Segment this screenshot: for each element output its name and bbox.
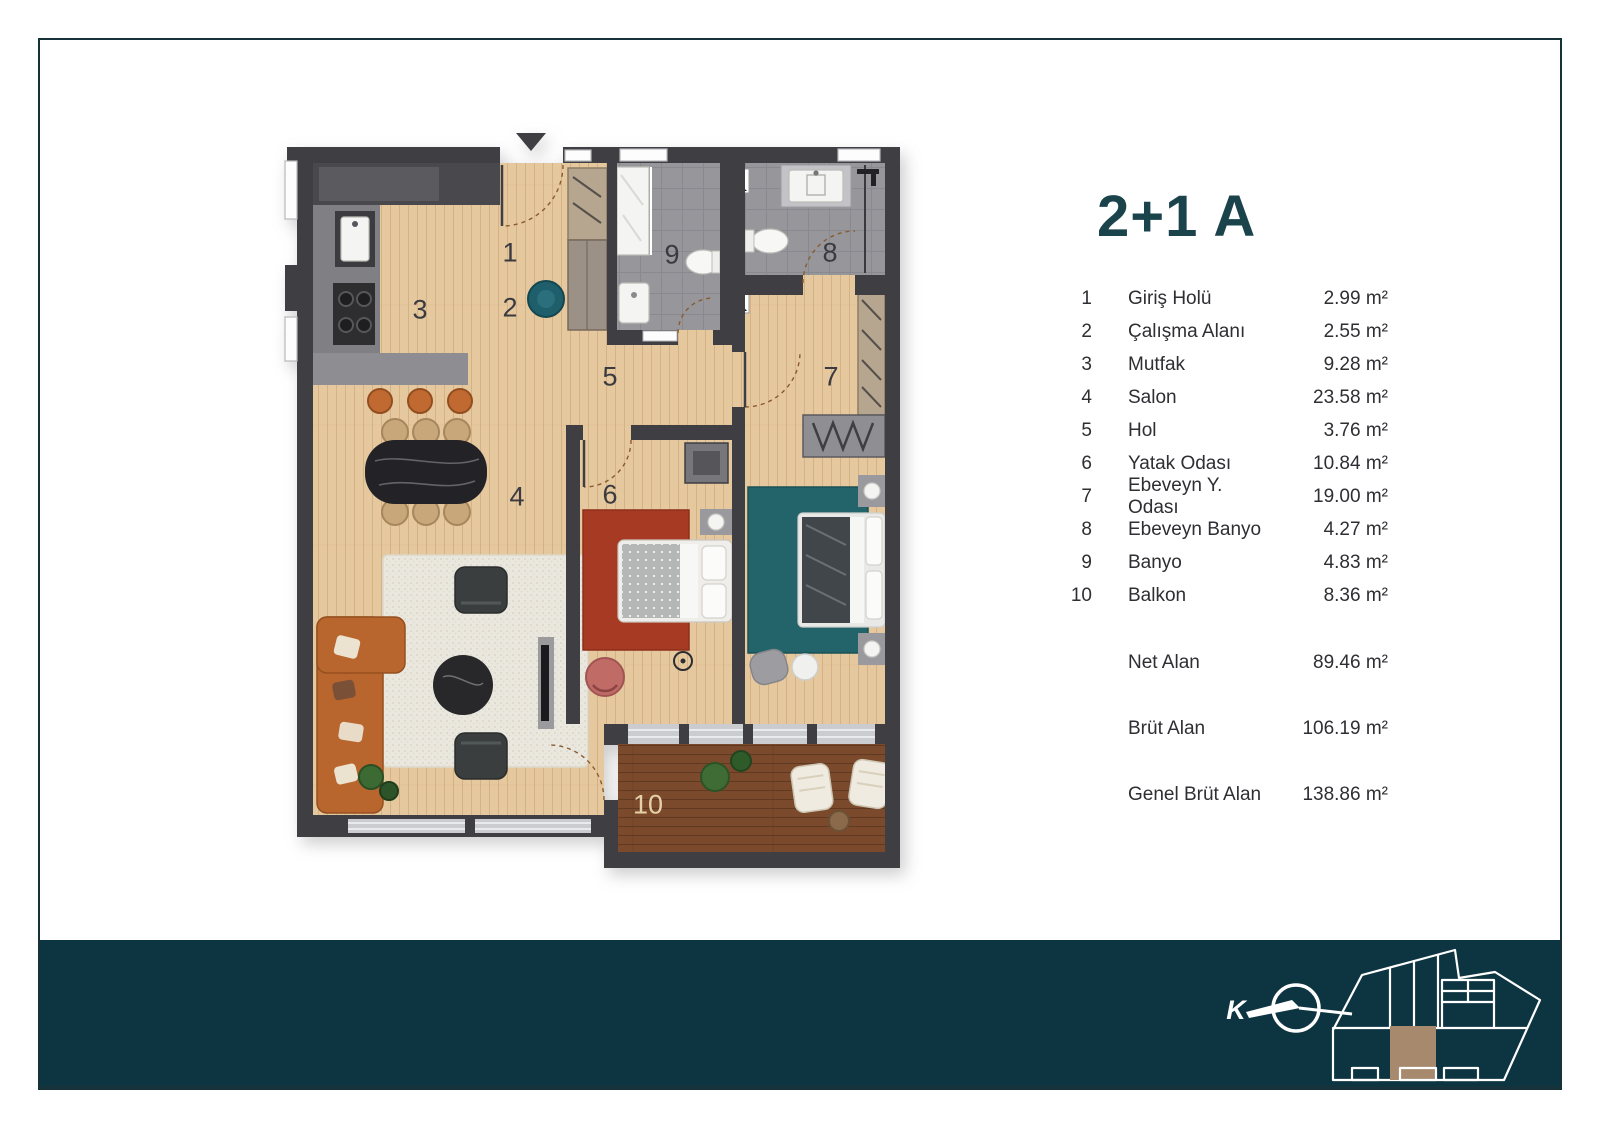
legend-room-label: Ebeveyn Y. Odası	[1128, 475, 1276, 519]
legend-row: 3Mutfak9.28 m²	[1062, 348, 1388, 381]
legend-room-area: 2.55 m²	[1276, 321, 1388, 343]
svg-text:K: K	[1226, 995, 1248, 1025]
legend-row: 4Salon23.58 m²	[1062, 381, 1388, 414]
balcony	[618, 724, 892, 852]
legend-room-number: 7	[1062, 486, 1092, 508]
legend-room-number: 1	[1062, 288, 1092, 310]
north-compass-icon: K	[1226, 985, 1352, 1031]
legend-row: 9Banyo4.83 m²	[1062, 546, 1388, 579]
legend-room-number: 4	[1062, 387, 1092, 409]
coffee-table	[433, 655, 493, 715]
total-brut: Brüt Alan106.19 m²	[1062, 718, 1388, 740]
legend-room-area: 10.84 m²	[1276, 453, 1388, 475]
legend-room-label: Salon	[1128, 387, 1276, 409]
bar-stool	[448, 389, 472, 413]
total-value: 89.46 m²	[1268, 652, 1388, 674]
legend-room-area: 19.00 m²	[1276, 486, 1388, 508]
total-label: Brüt Alan	[1128, 718, 1268, 740]
room-number-2: 2	[502, 293, 517, 324]
legend-room-area: 4.27 m²	[1276, 519, 1388, 541]
legend-room-number: 10	[1062, 585, 1092, 607]
entrance-arrow-icon	[516, 133, 546, 151]
legend-row: 7Ebeveyn Y. Odası19.00 m²	[1062, 480, 1388, 513]
legend-room-number: 3	[1062, 354, 1092, 376]
plant	[359, 765, 383, 789]
total-genel-brut: Genel Brüt Alan138.86 m²	[1062, 784, 1388, 806]
legend-room-number: 9	[1062, 552, 1092, 574]
legend-room-area: 2.99 m²	[1276, 288, 1388, 310]
tv	[541, 645, 549, 721]
room-legend: 1Giriş Holü2.99 m² 2Çalışma Alanı2.55 m²…	[1062, 282, 1388, 612]
legend-room-label: Banyo	[1128, 552, 1276, 574]
dining-area	[365, 419, 487, 525]
total-label: Genel Brüt Alan	[1128, 784, 1268, 806]
room-number-4: 4	[509, 482, 524, 513]
legend-room-label: Mutfak	[1128, 354, 1276, 376]
total-value: 138.86 m²	[1268, 784, 1388, 806]
legend-room-area: 23.58 m²	[1276, 387, 1388, 409]
floor-plan	[283, 125, 913, 870]
legend-room-label: Yatak Odası	[1128, 453, 1276, 475]
legend-room-number: 8	[1062, 519, 1092, 541]
room-number-1: 1	[502, 238, 517, 269]
lounge-chair	[790, 763, 834, 814]
legend-room-area: 4.83 m²	[1276, 552, 1388, 574]
legend-row: 1Giriş Holü2.99 m²	[1062, 282, 1388, 315]
legend-row: 5Hol3.76 m²	[1062, 414, 1388, 447]
bathroom-8	[745, 163, 885, 275]
legend-row: 8Ebeveyn Banyo4.27 m²	[1062, 513, 1388, 546]
utility-box-inner	[693, 451, 720, 475]
legend-room-area: 9.28 m²	[1276, 354, 1388, 376]
page: 1 2 3 4 5 6 7 8 9 10 2+1 A 1Giriş Holü2.…	[0, 0, 1600, 1131]
room-number-5: 5	[602, 362, 617, 393]
closet	[803, 415, 885, 457]
side-table	[792, 654, 818, 680]
legend-room-number: 2	[1062, 321, 1092, 343]
total-net: Net Alan89.46 m²	[1062, 652, 1388, 674]
total-label: Net Alan	[1128, 652, 1268, 674]
legend-room-label: Çalışma Alanı	[1128, 321, 1276, 343]
armchair	[455, 733, 507, 779]
plant	[380, 782, 398, 800]
legend-room-label: Giriş Holü	[1128, 288, 1276, 310]
room-number-6: 6	[602, 480, 617, 511]
bar-stool	[408, 389, 432, 413]
room-number-3: 3	[412, 295, 427, 326]
legend-room-number: 5	[1062, 420, 1092, 442]
footer-graphics: K	[40, 940, 1560, 1088]
legend-room-label: Hol	[1128, 420, 1276, 442]
armchair	[455, 567, 507, 613]
entry-wardrobe	[568, 168, 607, 330]
unit-highlight	[1390, 1026, 1436, 1080]
total-value: 106.19 m²	[1268, 718, 1388, 740]
unit-title: 2+1 A	[1097, 188, 1256, 246]
room-number-9: 9	[664, 240, 679, 271]
room-number-8: 8	[822, 238, 837, 269]
footer-band: K	[40, 940, 1560, 1088]
legend-room-label: Ebeveyn Banyo	[1128, 519, 1276, 541]
bar-stool	[368, 389, 392, 413]
legend-row: 10Balkon8.36 m²	[1062, 579, 1388, 612]
room-number-10: 10	[633, 790, 663, 821]
site-plan-icon	[1333, 950, 1540, 1080]
legend-room-number: 6	[1062, 453, 1092, 475]
legend-row: 2Çalışma Alanı2.55 m²	[1062, 315, 1388, 348]
legend-room-area: 8.36 m²	[1276, 585, 1388, 607]
legend-room-area: 3.76 m²	[1276, 420, 1388, 442]
legend-room-label: Balkon	[1128, 585, 1276, 607]
room-number-7: 7	[823, 362, 838, 393]
wardrobe	[858, 287, 885, 415]
